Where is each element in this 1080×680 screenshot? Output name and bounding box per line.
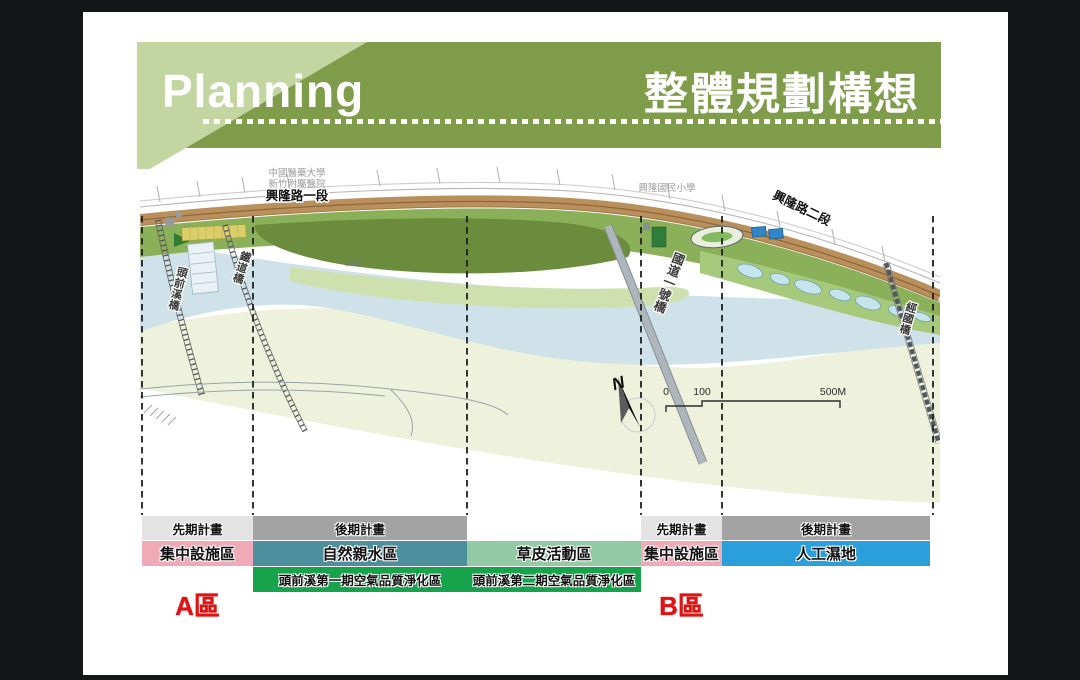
zone-bar-facilities-a: 集中設施區 xyxy=(142,541,253,566)
phase-bar-e: 後期計畫 xyxy=(722,516,930,540)
school-label: 興隆國民小學 xyxy=(638,182,695,194)
road-section1-label: 興隆路一段 xyxy=(266,188,329,203)
zone-a-marker: A區 xyxy=(142,589,253,619)
screen: Planning 整體規劃構想 xyxy=(0,0,1080,680)
zone-bar-lawn-activity: 草皮活動區 xyxy=(467,541,641,566)
weir xyxy=(187,242,218,294)
phase-bar-d: 先期計畫 xyxy=(641,516,722,540)
zone-b-marker: B區 xyxy=(641,589,722,619)
zone-bar-nature-water: 自然親水區 xyxy=(253,541,467,566)
road-section2-label: 興隆路二段 xyxy=(771,188,834,229)
dark-grove-shape xyxy=(255,218,630,273)
scale-100: 100 xyxy=(693,386,711,398)
sub-zone-bar-phase1: 頭前溪第一期空氣品質淨化區 xyxy=(253,567,467,592)
zone-bar-wetland: 人工濕地 xyxy=(722,541,930,566)
phase-bar-a: 先期計畫 xyxy=(142,516,253,540)
hospital-label-line1: 中國醫藥大學 xyxy=(268,167,325,179)
zone-bar-facilities-b: 集中設施區 xyxy=(641,541,722,566)
scale-500m: 500M xyxy=(820,386,846,398)
plan-map: N 0 100 500M 中國醫藥大學 新竹附屬醫院 興隆路一段 興隆國民小學 … xyxy=(140,163,940,515)
page-title-zh: 整體規劃構想 xyxy=(620,58,920,122)
page-title-en: Planning xyxy=(162,64,364,118)
scale-0: 0 xyxy=(663,386,669,398)
sub-zone-bar-phase2: 頭前溪第二期空氣品質淨化區 xyxy=(467,567,641,592)
phase-bar-b: 後期計畫 xyxy=(253,516,467,540)
